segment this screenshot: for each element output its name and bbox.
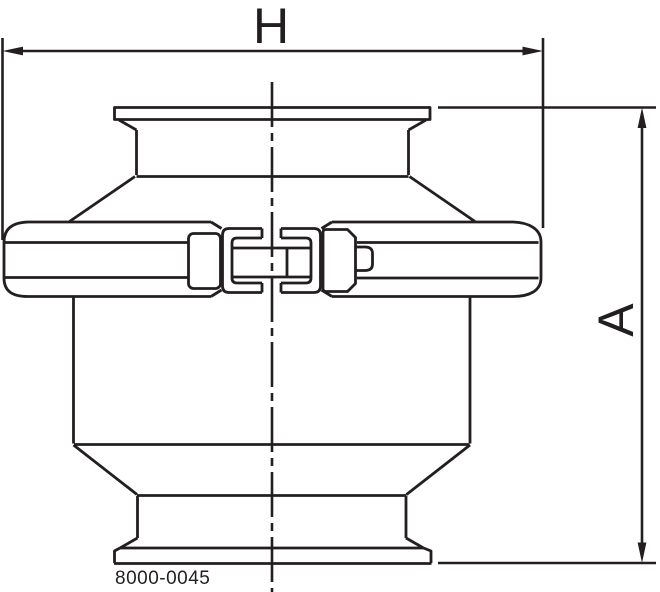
dimension-a-arrow-top-icon [638,108,647,129]
dimension-a-label: A [588,303,644,337]
clamp-lug-left [189,234,221,289]
dimension-h-label: H [253,0,289,54]
clamp-bracket-left [223,229,263,293]
clamp-band-right-inner-edges [357,243,539,279]
technical-drawing-svg: H A 8000-0045 [0,0,660,592]
part-number-label: 8000-0045 [115,568,210,589]
clamp-band-left-inner-edges [5,243,189,278]
dimension-a-arrow-bottom-icon [638,543,647,564]
clamp-lug-right [323,230,356,292]
dimension-h-arrow-left-icon [3,47,24,56]
dimension-h-arrow-right-icon [523,47,544,56]
clamp-bolt-tip [356,247,373,271]
